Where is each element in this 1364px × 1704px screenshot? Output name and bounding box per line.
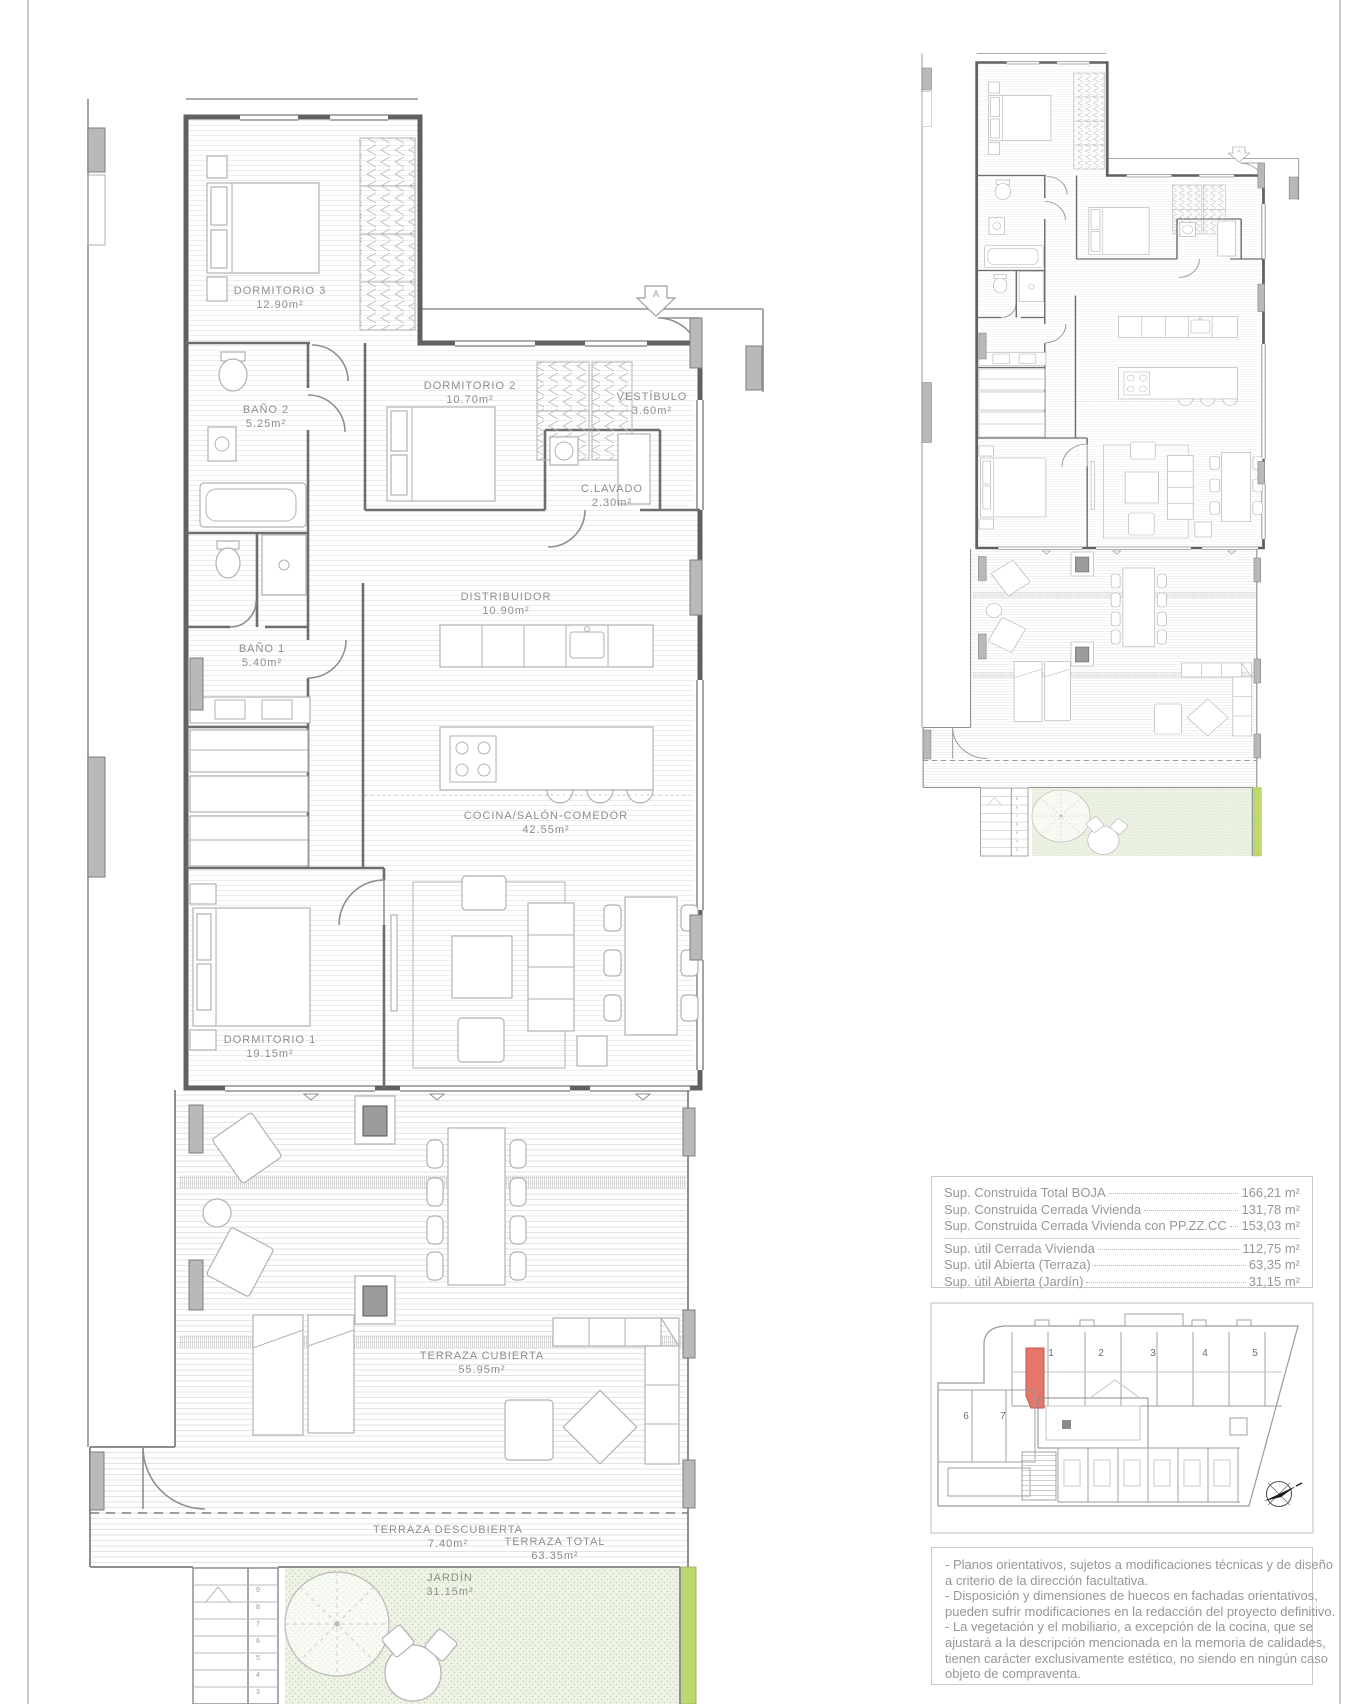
table-separator [944, 1238, 1300, 1239]
table-row-label: Sup. útil Cerrada Vivienda [944, 1241, 1095, 1258]
disclaimer-line: tienen carácter exclusivamente estético,… [945, 1651, 1299, 1667]
leader-dots [1230, 1226, 1239, 1227]
room-area: 42.55m² [522, 824, 569, 836]
room-label-dormitorio-3: DORMITORIO 3 [234, 285, 326, 297]
disclaimer-line: a criterio de la dirección facultativa. [945, 1573, 1299, 1589]
table-row: Sup. útil Abierta (Terraza) 63,35 m² [944, 1257, 1300, 1274]
room-area: 10.90m² [482, 605, 529, 617]
room-label-terraza-total: TERRAZA TOTAL [504, 1536, 605, 1548]
floor-plan-sheet: 9 8 7 6 5 4 3 [0, 0, 1364, 1704]
table-row-label: Sup. Construida Cerrada Vivienda [944, 1202, 1141, 1219]
room-area: 10.70m² [446, 394, 493, 406]
table-row: Sup. útil Abierta (Jardín) 31,15 m² [944, 1274, 1300, 1291]
room-area: 31.15m² [426, 1586, 473, 1598]
table-row-value: 112,75 m² [1242, 1241, 1300, 1258]
table-row-label: Sup. Construida Cerrada Vivienda con PP.… [944, 1218, 1227, 1235]
table-row: Sup. Construida Cerrada Vivienda 131,78 … [944, 1202, 1300, 1219]
table-row-value: 153,03 m² [1241, 1218, 1300, 1235]
table-row: Sup. Construida Total BOJA 166,21 m² [944, 1185, 1300, 1202]
site-unit-number-2: 2 [1098, 1348, 1104, 1359]
disclaimer-note: - Planos orientativos, sujetos a modific… [931, 1547, 1313, 1685]
room-label-jardin: JARDÍN [427, 1571, 473, 1584]
disclaimer-line: ajustará a la descripción mencionada en … [945, 1635, 1299, 1651]
room-area: 55.95m² [458, 1364, 505, 1376]
site-unit-number-6: 6 [963, 1411, 969, 1422]
disclaimer-line: objeto de compraventa. [945, 1666, 1299, 1682]
room-label-dormitorio-2: DORMITORIO 2 [424, 380, 516, 392]
table-row-label: Sup. útil Abierta (Terraza) [944, 1257, 1091, 1274]
site-unit-number-7: 7 [1000, 1411, 1006, 1422]
room-area: 12.90m² [256, 299, 303, 311]
room-label-distribuidor: DISTRIBUIDOR [461, 591, 552, 603]
table-row-label: Sup. Construida Total BOJA [944, 1185, 1106, 1202]
areas-summary-table: Sup. Construida Total BOJA 166,21 m² Sup… [931, 1176, 1313, 1288]
room-area: 5.25m² [246, 418, 286, 430]
room-label-vestibulo: VESTÍBULO [617, 390, 688, 403]
room-label-dormitorio-1: DORMITORIO 1 [224, 1034, 316, 1046]
disclaimer-line: - Planos orientativos, sujetos a modific… [945, 1557, 1299, 1573]
site-unit-number-4: 4 [1202, 1348, 1208, 1359]
disclaimer-line: - La vegetación y el mobiliario, a excep… [945, 1619, 1299, 1635]
table-row-value: 31,15 m² [1249, 1274, 1300, 1291]
table-row-value: 131,78 m² [1241, 1202, 1300, 1219]
disclaimer-line: - Disposición y dimensiones de huecos en… [945, 1588, 1299, 1604]
floor-plan-canvas: 9 8 7 6 5 4 3 [0, 0, 1364, 1704]
table-row-label: Sup. útil Abierta (Jardín) [944, 1274, 1083, 1291]
room-label-bano-1: BAÑO 1 [239, 642, 285, 655]
room-area: 19.15m² [246, 1048, 293, 1060]
disclaimer-line: pueden sufrir modificaciones en la redac… [945, 1604, 1299, 1620]
site-unit-number-1: 1 [1048, 1348, 1054, 1359]
main-floor-plan [88, 99, 763, 1704]
site-key-plan: 1 2 3 4 5 6 7 [931, 1303, 1313, 1533]
room-area: 7.40m² [428, 1538, 468, 1550]
room-label-terraza-cubierta: TERRAZA CUBIERTA [420, 1350, 544, 1362]
room-area: 2.30m² [592, 497, 632, 509]
room-label-cocina-salon: COCINA/SALÓN-COMEDOR [464, 809, 628, 822]
room-label-bano-2: BAÑO 2 [243, 403, 289, 416]
room-label-clavado: C.LAVADO [581, 483, 643, 495]
mini-overview-plan [922, 54, 1299, 857]
leader-dots [1109, 1193, 1239, 1194]
table-row-value: 63,35 m² [1249, 1257, 1300, 1274]
table-row-value: 166,21 m² [1241, 1185, 1300, 1202]
site-unit-number-3: 3 [1150, 1348, 1156, 1359]
room-label-terraza-descubierta: TERRAZA DESCUBIERTA [373, 1524, 523, 1536]
site-unit-number-5: 5 [1252, 1348, 1258, 1359]
table-row: Sup. Construida Cerrada Vivienda con PP.… [944, 1218, 1300, 1235]
room-area: 63.35m² [531, 1550, 578, 1562]
leader-dots [1144, 1210, 1238, 1211]
leader-dots [1094, 1265, 1246, 1266]
room-area: 3.60m² [632, 405, 672, 417]
leader-dots [1098, 1249, 1240, 1250]
table-row: Sup. útil Cerrada Vivienda 112,75 m² [944, 1241, 1300, 1258]
room-area: 5.40m² [242, 657, 282, 669]
leader-dots [1086, 1282, 1245, 1283]
